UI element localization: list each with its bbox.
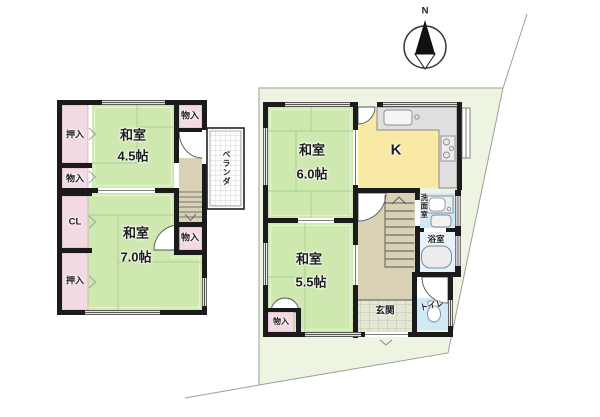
- floor1-plan: [263, 102, 470, 345]
- bathtub: [422, 246, 452, 268]
- floorplan-canvas: N 押入 物入 CL 押入 和室 4.5帖 物入 ベランダ 物入 和室 7.0帖…: [0, 0, 600, 417]
- storage-right-box: [179, 227, 202, 250]
- kitchen-sink: [384, 110, 412, 125]
- storage-1f-box: [268, 312, 294, 332]
- toilet-fixture: [428, 301, 441, 322]
- storage-top-right-box: [179, 105, 202, 128]
- washing-machine: [431, 215, 451, 227]
- closet-bottom-box: [62, 253, 88, 310]
- closet-cl-box: [62, 196, 88, 248]
- floor2-plan: [57, 100, 244, 315]
- storage-left-box: [62, 168, 88, 191]
- compass-icon: [404, 20, 446, 69]
- veranda-deck: [207, 128, 244, 209]
- floorplan-graphic: [0, 0, 600, 417]
- room-45-floor: [92, 105, 174, 188]
- closet-top-box: [62, 105, 88, 163]
- landing-2f: [179, 158, 202, 223]
- door-arc: [179, 131, 202, 158]
